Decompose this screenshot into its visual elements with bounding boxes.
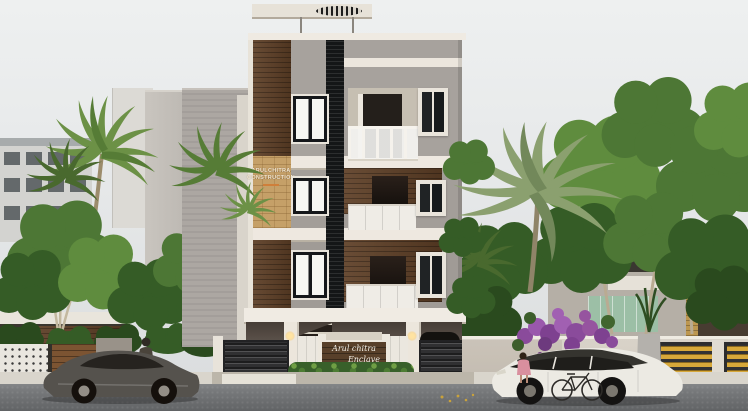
wood-column-low [250,240,291,310]
construction-sign: ARULCHITRA CONSTRUCTION [252,168,290,202]
mid-balcony-doors [348,204,416,230]
road [0,380,748,411]
staircase-glazing-strip [326,40,344,322]
balcony-top-glass-railing [348,126,418,161]
architectural-render: ARULCHITRA CONSTRUCTION [0,0,748,411]
window-low-right [416,252,446,298]
window-low-left [293,252,327,298]
roof-pergola-slats [316,6,362,16]
construction-sign-tagline-bar [263,184,279,186]
window-top-right [418,88,448,136]
construction-sign-line2: CONSTRUCTION [247,175,295,182]
window-top-left [293,96,327,142]
entrance-sign-line1: Arul chitra [322,344,386,353]
window-mid-right [416,180,446,216]
wood-column-top [252,40,291,158]
wall-lamp-right [407,331,417,341]
parapet-cap [248,33,466,40]
construction-sign-line1: ARULCHITRA [251,168,290,175]
white-band [344,58,462,67]
building-right-edge-shade [458,40,462,310]
low-balcony-doors [346,284,418,308]
driveway-ramp [222,374,296,384]
window-mid-left [293,178,327,214]
